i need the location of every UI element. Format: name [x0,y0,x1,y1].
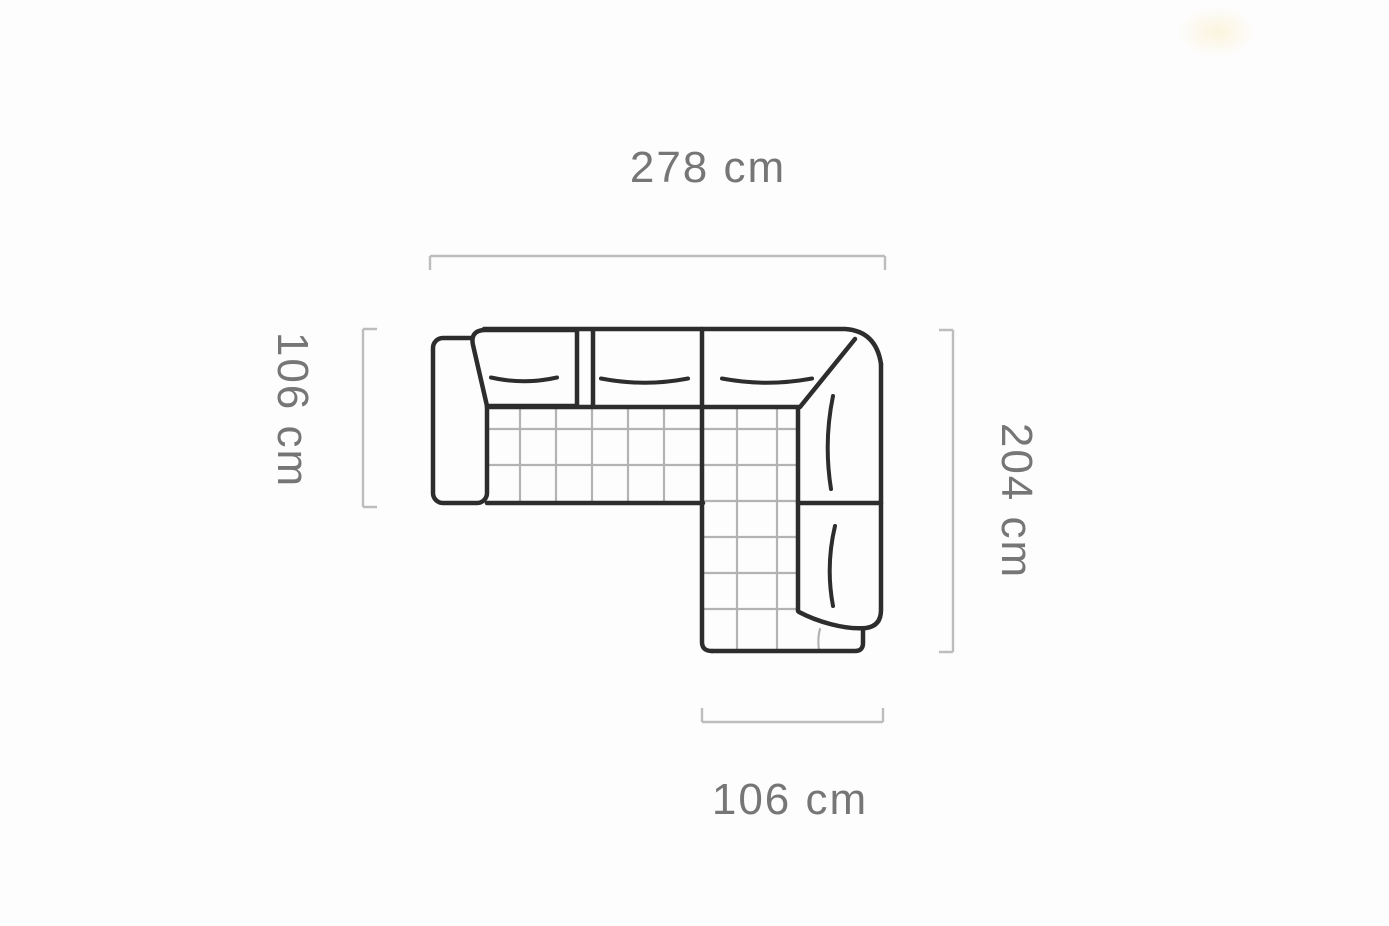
chaise-bottom-edge [712,630,863,651]
quilt-grid-horizontals [489,429,796,609]
quilt-grid-verticals [520,408,777,649]
sofa-dimension-diagram: 278 cm 106 cm 204 cm 106 cm [0,0,1389,926]
dimension-label-left: 106 cm [270,332,314,488]
right-armrest-outer-edge [799,364,881,628]
back-cushion-1 [472,330,577,406]
dimension-label-top: 278 cm [630,146,786,190]
dimension-label-right: 204 cm [994,423,1038,579]
dim-line-top [430,256,885,270]
corner-diagonal-seam [800,339,855,407]
dim-line-left [363,329,377,507]
dim-line-bottom [702,708,883,722]
chaise-left-edge [702,329,712,651]
sofa-outline [433,329,881,651]
dim-line-right [939,330,953,652]
quilt-grid [489,408,820,650]
chaise-front-seam [818,629,820,650]
sofa-top-view-drawing [0,0,1389,926]
dimension-label-bottom: 106 cm [712,778,868,822]
